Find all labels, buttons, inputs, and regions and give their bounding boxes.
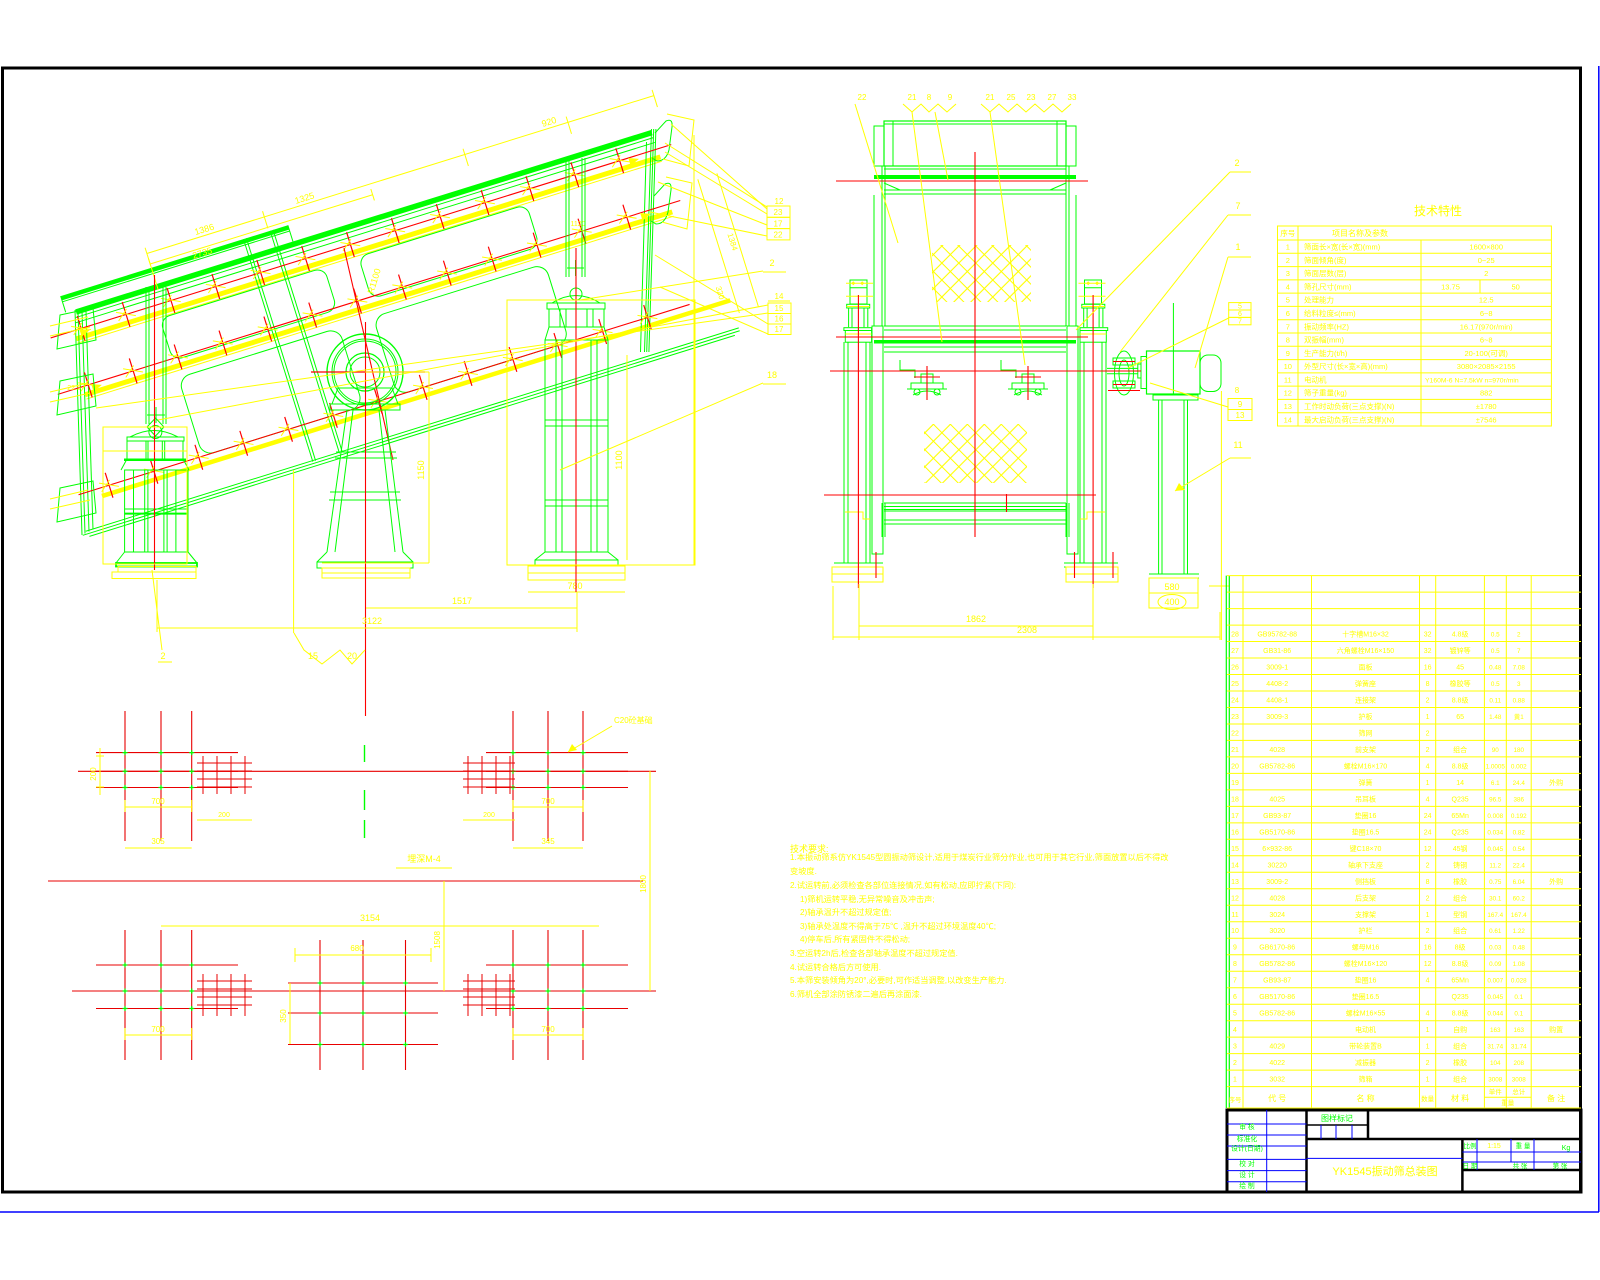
svg-text:6~8: 6~8 <box>1480 309 1493 318</box>
svg-text:2)轴承温升不超过规定值;: 2)轴承温升不超过规定值; <box>800 907 891 917</box>
svg-text:4.试运转合格后方可使用.: 4.试运转合格后方可使用. <box>790 962 881 972</box>
svg-text:R1100: R1100 <box>366 267 383 295</box>
svg-text:绘 制: 绘 制 <box>1239 1181 1255 1190</box>
svg-text:0.034: 0.034 <box>1487 829 1503 836</box>
svg-text:345: 345 <box>541 837 555 846</box>
svg-text:200: 200 <box>89 767 98 781</box>
svg-text:GB93-87: GB93-87 <box>1263 978 1291 985</box>
svg-text:2: 2 <box>1426 928 1430 935</box>
svg-text:1.48: 1.48 <box>1489 714 1502 721</box>
svg-text:1: 1 <box>1286 243 1290 252</box>
svg-text:项目名称及参数: 项目名称及参数 <box>1332 228 1388 238</box>
svg-text:350: 350 <box>279 1009 288 1023</box>
svg-text:2: 2 <box>1426 862 1430 869</box>
svg-text:1517: 1517 <box>452 596 472 606</box>
svg-text:GB93-87: GB93-87 <box>1263 813 1291 820</box>
svg-text:11.2: 11.2 <box>1489 862 1501 869</box>
svg-text:审 核: 审 核 <box>1239 1122 1255 1131</box>
svg-text:32: 32 <box>1424 648 1432 655</box>
svg-text:13: 13 <box>1231 879 1239 886</box>
svg-text:2: 2 <box>1286 256 1290 265</box>
svg-text:24: 24 <box>1424 813 1432 820</box>
svg-text:7: 7 <box>1233 978 1237 985</box>
svg-text:0.044: 0.044 <box>1487 1011 1503 1018</box>
svg-text:校 对: 校 对 <box>1239 1159 1255 1168</box>
svg-text:5.本筛安装倾角为20°,必要时,可作适当调整,以改变生产能: 5.本筛安装倾角为20°,必要时,可作适当调整,以改变生产能力. <box>790 975 1007 985</box>
svg-text:减振器: 减振器 <box>1355 1058 1376 1067</box>
svg-text:0.007: 0.007 <box>1487 978 1503 985</box>
svg-text:2: 2 <box>1426 1060 1430 1067</box>
svg-text:9: 9 <box>948 93 953 102</box>
svg-text:4: 4 <box>1286 282 1290 291</box>
svg-text:2: 2 <box>1233 1060 1237 1067</box>
svg-text:65Mn: 65Mn <box>1451 813 1469 820</box>
svg-text:0.48: 0.48 <box>1513 945 1526 952</box>
svg-text:7: 7 <box>1286 322 1290 331</box>
svg-text:名 称: 名 称 <box>1356 1093 1374 1103</box>
svg-text:Y160M-6 N=7.5kW n=970r/min: Y160M-6 N=7.5kW n=970r/min <box>1425 377 1519 384</box>
svg-text:18: 18 <box>1231 796 1239 803</box>
svg-text:0.045: 0.045 <box>1487 994 1503 1001</box>
svg-text:22.4: 22.4 <box>1513 862 1526 869</box>
svg-text:外型尺寸(长×宽×高)(mm): 外型尺寸(长×宽×高)(mm) <box>1304 361 1388 371</box>
svg-text:2: 2 <box>769 258 774 268</box>
svg-text:序号: 序号 <box>1229 1095 1243 1104</box>
svg-text:3)轴承处温度不得高于75℃ ,温升不超过环境温度40℃;: 3)轴承处温度不得高于75℃ ,温升不超过环境温度40℃; <box>800 921 996 931</box>
svg-text:0.48: 0.48 <box>1489 665 1502 672</box>
svg-text:埋深M-4: 埋深M-4 <box>407 854 441 864</box>
svg-text:11: 11 <box>1231 912 1238 919</box>
svg-text:1:15: 1:15 <box>1487 1143 1501 1150</box>
svg-text:33: 33 <box>1068 93 1077 102</box>
svg-text:65Mn: 65Mn <box>1451 978 1469 985</box>
svg-text:3009-2: 3009-2 <box>1266 879 1288 886</box>
svg-text:3122: 3122 <box>362 616 382 626</box>
svg-text:GB5170-86: GB5170-86 <box>1259 994 1295 1001</box>
svg-text:21: 21 <box>908 93 917 102</box>
svg-text:0.61: 0.61 <box>1489 928 1502 935</box>
svg-text:24: 24 <box>1231 698 1239 705</box>
svg-text:1: 1 <box>1426 1044 1430 1051</box>
svg-text:700: 700 <box>541 797 555 806</box>
svg-text:4408-1: 4408-1 <box>1266 698 1288 705</box>
svg-text:1: 1 <box>1426 714 1430 721</box>
svg-text:19: 19 <box>1231 780 1239 787</box>
svg-text:22.5: 22.5 <box>67 385 81 392</box>
svg-text:16.17(970r/min): 16.17(970r/min) <box>1460 322 1513 331</box>
svg-text:3080×2085×2155: 3080×2085×2155 <box>1457 362 1516 371</box>
svg-text:十字槽M16×32: 十字槽M16×32 <box>1342 630 1389 639</box>
svg-text:代 号: 代 号 <box>1268 1093 1286 1103</box>
svg-text:3020: 3020 <box>1269 928 1285 935</box>
svg-text:电动机: 电动机 <box>1355 1025 1376 1034</box>
svg-text:700: 700 <box>151 797 165 806</box>
svg-text:163: 163 <box>1490 1027 1501 1034</box>
svg-text:1325: 1325 <box>293 190 315 206</box>
svg-text:3009-3: 3009-3 <box>1266 714 1288 721</box>
svg-text:167.4: 167.4 <box>1511 912 1527 919</box>
svg-text:4028: 4028 <box>1269 747 1285 754</box>
svg-text:1.22: 1.22 <box>1513 928 1526 935</box>
svg-text:16: 16 <box>775 315 784 324</box>
svg-text:GB5782-86: GB5782-86 <box>1259 763 1295 770</box>
svg-text:25: 25 <box>1007 93 1016 102</box>
svg-text:双振幅(mm): 双振幅(mm) <box>1304 335 1344 345</box>
svg-text:2: 2 <box>1234 158 1239 168</box>
svg-text:4: 4 <box>1426 763 1430 770</box>
svg-text:螺母M16: 螺母M16 <box>1352 943 1380 952</box>
svg-text:2: 2 <box>160 651 165 661</box>
svg-text:工作时动负荷(三点支撑)(N): 工作时动负荷(三点支撑)(N) <box>1304 401 1395 411</box>
svg-text:12: 12 <box>1424 846 1432 853</box>
svg-text:5: 5 <box>1233 1011 1237 1018</box>
svg-text:11: 11 <box>1233 440 1242 450</box>
svg-text:Q235: Q235 <box>1452 994 1469 1001</box>
svg-text:GB5782-86: GB5782-86 <box>1259 961 1295 968</box>
svg-text:0.5: 0.5 <box>1491 681 1500 688</box>
svg-text:弹簧: 弹簧 <box>1359 778 1373 787</box>
svg-text:橡胶等: 橡胶等 <box>1450 679 1471 688</box>
svg-text:0.03: 0.03 <box>1489 945 1502 952</box>
svg-text:9: 9 <box>1233 945 1237 952</box>
svg-text:4: 4 <box>1426 978 1430 985</box>
svg-text:12: 12 <box>1231 895 1239 902</box>
svg-text:9: 9 <box>1238 400 1243 409</box>
svg-text:1150: 1150 <box>416 460 426 479</box>
svg-text:0.54: 0.54 <box>1513 846 1526 853</box>
svg-text:200: 200 <box>483 812 495 819</box>
svg-text:30220: 30220 <box>1267 862 1287 869</box>
svg-text:3024: 3024 <box>1269 912 1285 919</box>
svg-text:螺栓M16×170: 螺栓M16×170 <box>1344 761 1387 770</box>
svg-text:1: 1 <box>1235 242 1240 252</box>
svg-text:15: 15 <box>1231 846 1239 853</box>
svg-text:型钢: 型钢 <box>1453 910 1467 919</box>
svg-text:垫圈16.5: 垫圈16.5 <box>1352 827 1380 836</box>
svg-text:比例: 比例 <box>1464 1141 1477 1150</box>
svg-text:15: 15 <box>775 304 784 313</box>
svg-text:单件: 单件 <box>1489 1087 1503 1096</box>
svg-text:自购: 自购 <box>1453 1025 1467 1034</box>
svg-text:6: 6 <box>1286 309 1290 318</box>
svg-text:4022: 4022 <box>1269 1060 1285 1067</box>
svg-text:22: 22 <box>774 231 783 240</box>
svg-text:24.4: 24.4 <box>1513 780 1526 787</box>
svg-text:1508: 1508 <box>433 931 442 949</box>
svg-text:208: 208 <box>1514 1060 1525 1067</box>
svg-text:6~8: 6~8 <box>1480 336 1493 345</box>
svg-text:筛孔尺寸(mm): 筛孔尺寸(mm) <box>1304 281 1352 291</box>
svg-text:1.0005: 1.0005 <box>1486 763 1506 770</box>
svg-text:材 料: 材 料 <box>1451 1093 1469 1103</box>
svg-text:共 张: 共 张 <box>1513 1161 1528 1170</box>
svg-text:8.8级: 8.8级 <box>1452 761 1469 770</box>
svg-text:前支架: 前支架 <box>1355 745 1376 754</box>
svg-text:9: 9 <box>1286 349 1290 358</box>
svg-text:连接架: 连接架 <box>1355 696 1376 705</box>
svg-text:200: 200 <box>218 812 230 819</box>
svg-text:0.1: 0.1 <box>1514 1011 1523 1018</box>
svg-text:14: 14 <box>1456 780 1464 787</box>
svg-text:4025: 4025 <box>1269 796 1285 803</box>
svg-text:C20砼基础: C20砼基础 <box>614 715 653 725</box>
svg-text:180: 180 <box>1514 747 1525 754</box>
svg-text:侧挡板: 侧挡板 <box>1355 877 1376 886</box>
svg-text:45钢: 45钢 <box>1453 844 1468 853</box>
svg-text:2308: 2308 <box>1017 625 1037 635</box>
svg-text:带轮装置B: 带轮装置B <box>1349 1042 1382 1051</box>
svg-text:882: 882 <box>1480 389 1493 398</box>
svg-text:螺栓M16×120: 螺栓M16×120 <box>1344 959 1387 968</box>
svg-text:104: 104 <box>1490 1060 1501 1067</box>
svg-text:1: 1 <box>1426 912 1430 919</box>
svg-text:6: 6 <box>1233 994 1237 1001</box>
svg-text:12: 12 <box>1284 389 1292 398</box>
svg-text:12: 12 <box>1424 961 1432 968</box>
svg-text:后支架: 后支架 <box>1355 893 1376 902</box>
svg-text:±1780: ±1780 <box>1476 402 1497 411</box>
svg-text:305: 305 <box>151 837 165 846</box>
svg-text:0.028: 0.028 <box>1511 978 1527 985</box>
svg-text:1600×800: 1600×800 <box>1469 243 1503 252</box>
svg-text:筛子重量(kg): 筛子重量(kg) <box>1304 388 1347 398</box>
svg-text:7: 7 <box>1238 318 1242 325</box>
svg-text:组合: 组合 <box>1453 893 1467 902</box>
svg-text:8: 8 <box>1426 879 1430 886</box>
svg-text:12: 12 <box>775 197 784 206</box>
svg-text:1)筛机运转平稳,无异常噪音及冲击声;: 1)筛机运转平稳,无异常噪音及冲击声; <box>800 894 935 904</box>
svg-text:1: 1 <box>1233 1077 1237 1084</box>
svg-text:580: 580 <box>1164 582 1179 592</box>
svg-text:电动机: 电动机 <box>1304 374 1327 384</box>
svg-text:65: 65 <box>1456 714 1464 721</box>
svg-text:28: 28 <box>1231 632 1239 639</box>
svg-text:1100: 1100 <box>614 450 624 469</box>
svg-text:重 量: 重 量 <box>1516 1142 1531 1150</box>
svg-text:27: 27 <box>1048 93 1057 102</box>
svg-text:生产能力(t/h): 生产能力(t/h) <box>1304 348 1348 358</box>
svg-text:变坡度.: 变坡度. <box>790 866 817 876</box>
svg-text:4: 4 <box>1426 796 1430 803</box>
svg-text:21: 21 <box>986 93 995 102</box>
svg-text:0.75: 0.75 <box>1489 879 1502 886</box>
svg-text:GB31-86: GB31-86 <box>1263 648 1291 655</box>
svg-text:2: 2 <box>1517 632 1521 639</box>
svg-text:400: 400 <box>1164 597 1179 607</box>
svg-text:700: 700 <box>541 1025 555 1034</box>
svg-text:4: 4 <box>1233 1027 1237 1034</box>
svg-text:60.2: 60.2 <box>1513 895 1526 902</box>
svg-text:0.09: 0.09 <box>1489 961 1502 968</box>
svg-text:0.008: 0.008 <box>1487 813 1503 820</box>
svg-text:25: 25 <box>1231 681 1239 688</box>
svg-text:筛网: 筛网 <box>1359 728 1373 737</box>
svg-text:组合: 组合 <box>1453 745 1467 754</box>
svg-text:163: 163 <box>1514 1027 1525 1034</box>
svg-text:3008: 3008 <box>1512 1077 1527 1084</box>
svg-text:0.82: 0.82 <box>1513 829 1526 836</box>
svg-text:面板: 面板 <box>1359 663 1373 672</box>
svg-text:31.74: 31.74 <box>1511 1044 1527 1051</box>
svg-text:垫圈16: 垫圈16 <box>1355 976 1377 985</box>
svg-text:YK1545振动筛总装图: YK1545振动筛总装图 <box>1332 1164 1437 1178</box>
svg-text:23: 23 <box>774 208 783 217</box>
svg-text:1.08: 1.08 <box>1513 961 1526 968</box>
svg-text:0.5: 0.5 <box>1491 632 1500 639</box>
svg-text:23: 23 <box>1027 93 1036 102</box>
svg-text:GB5782-86: GB5782-86 <box>1259 1011 1295 1018</box>
svg-text:垫圈16: 垫圈16 <box>1355 811 1377 820</box>
svg-text:六角螺栓M16×150: 六角螺栓M16×150 <box>1337 646 1394 655</box>
svg-text:最大启动负荷(三点支撑)(N): 最大启动负荷(三点支撑)(N) <box>1304 414 1395 424</box>
svg-text:筛箱: 筛箱 <box>1359 1075 1373 1084</box>
svg-text:±7546: ±7546 <box>1476 415 1497 424</box>
svg-text:3: 3 <box>1517 681 1521 688</box>
svg-text:4028: 4028 <box>1269 895 1285 902</box>
svg-text:设 计: 设 计 <box>1239 1170 1255 1179</box>
svg-text:1: 1 <box>1426 1077 1430 1084</box>
svg-text:组合: 组合 <box>1453 1075 1467 1084</box>
svg-text:0.88: 0.88 <box>1513 698 1526 705</box>
svg-text:标准化: 标准化 <box>1237 1134 1258 1143</box>
svg-text:167.4: 167.4 <box>1487 912 1503 919</box>
svg-text:16: 16 <box>1424 945 1432 952</box>
svg-text:1862: 1862 <box>966 614 986 624</box>
svg-text:1800: 1800 <box>639 875 648 893</box>
svg-text:2: 2 <box>1426 698 1430 705</box>
svg-text:2: 2 <box>1426 747 1430 754</box>
svg-text:振动频率(HZ): 振动频率(HZ) <box>1304 321 1349 331</box>
svg-text:700: 700 <box>151 1025 165 1034</box>
svg-text:技术特性: 技术特性 <box>1414 203 1462 218</box>
svg-text:8: 8 <box>1233 961 1237 968</box>
svg-text:18: 18 <box>767 370 777 380</box>
svg-text:7: 7 <box>1235 201 1240 211</box>
svg-text:20-100(可调): 20-100(可调) <box>1465 349 1509 358</box>
svg-text:1120: 1120 <box>570 221 585 228</box>
svg-text:96.5: 96.5 <box>1489 796 1502 803</box>
svg-text:购置: 购置 <box>1549 1025 1563 1034</box>
svg-text:6.筛机全部涂防锈漆二遍后再涂面漆.: 6.筛机全部涂防锈漆二遍后再涂面漆. <box>790 989 922 999</box>
svg-text:7.08: 7.08 <box>1513 665 1526 672</box>
svg-text:外购: 外购 <box>1549 778 1563 787</box>
svg-text:17: 17 <box>774 219 783 228</box>
svg-text:4029: 4029 <box>1269 1044 1285 1051</box>
svg-text:组合: 组合 <box>1453 1042 1467 1051</box>
svg-text:10: 10 <box>1231 928 1239 935</box>
svg-text:20: 20 <box>1231 763 1239 770</box>
svg-text:垫圈16.5: 垫圈16.5 <box>1352 992 1380 1001</box>
svg-text:17: 17 <box>1231 813 1239 820</box>
svg-text:4)停车后,所有紧固件不得松动;: 4)停车后,所有紧固件不得松动; <box>800 934 910 944</box>
svg-text:吊耳板: 吊耳板 <box>1355 794 1376 803</box>
svg-text:重量: 重量 <box>1501 1099 1515 1107</box>
svg-text:图样标记: 图样标记 <box>1321 1113 1353 1123</box>
svg-text:0.1: 0.1 <box>1514 994 1523 1001</box>
svg-text:780: 780 <box>567 581 582 591</box>
svg-text:护板: 护板 <box>1359 712 1373 721</box>
svg-text:备 注: 备 注 <box>1547 1093 1565 1103</box>
svg-text:2: 2 <box>1484 269 1488 278</box>
svg-text:15: 15 <box>308 651 318 661</box>
svg-text:3008: 3008 <box>1488 1077 1503 1084</box>
svg-text:GB6170-86: GB6170-86 <box>1259 945 1295 952</box>
svg-text:外购: 外购 <box>1549 877 1563 886</box>
svg-text:31.74: 31.74 <box>1487 1044 1503 1051</box>
svg-text:14: 14 <box>1284 415 1292 424</box>
svg-text:14: 14 <box>775 292 784 301</box>
svg-text:给料粒度≤(mm): 给料粒度≤(mm) <box>1304 308 1356 318</box>
svg-text:支撑架: 支撑架 <box>1355 910 1376 919</box>
svg-text:21: 21 <box>1231 747 1239 754</box>
svg-text:2: 2 <box>1426 730 1430 737</box>
svg-text:8.8级: 8.8级 <box>1452 1009 1469 1018</box>
svg-text:10: 10 <box>1284 362 1292 371</box>
svg-text:680: 680 <box>350 944 364 953</box>
svg-text:6.04: 6.04 <box>1513 879 1526 886</box>
svg-text:11: 11 <box>1284 375 1292 384</box>
svg-text:17: 17 <box>775 325 784 334</box>
svg-text:3.空运转2h后,检查各部轴承温度不超过规定值.: 3.空运转2h后,检查各部轴承温度不超过规定值. <box>790 948 958 958</box>
svg-text:1.本振动筛系仿YK1545型圆振动筛设计,适用于煤炭行业筛: 1.本振动筛系仿YK1545型圆振动筛设计,适用于煤炭行业筛分作业,也可用于其它… <box>790 852 1168 862</box>
svg-text:26: 26 <box>1231 665 1239 672</box>
svg-text:6.1: 6.1 <box>1491 780 1500 787</box>
svg-text:0.5: 0.5 <box>1491 648 1500 655</box>
svg-text:23: 23 <box>1231 714 1239 721</box>
svg-text:16: 16 <box>1231 829 1239 836</box>
svg-text:第 张: 第 张 <box>1553 1161 1568 1170</box>
svg-text:总计: 总计 <box>1512 1087 1526 1096</box>
svg-text:7: 7 <box>1517 648 1521 655</box>
svg-text:筛面层数(层): 筛面层数(层) <box>1304 268 1347 278</box>
svg-text:处理能力: 处理能力 <box>1304 295 1334 305</box>
svg-text:镀锌等: 镀锌等 <box>1450 646 1471 655</box>
svg-text:1384: 1384 <box>725 232 739 252</box>
svg-text:320: 320 <box>714 285 727 301</box>
svg-text:5: 5 <box>1286 296 1290 305</box>
svg-text:序号: 序号 <box>1280 228 1295 238</box>
svg-text:组合: 组合 <box>1453 926 1467 935</box>
svg-text:14: 14 <box>1231 862 1239 869</box>
svg-text:8.8级: 8.8级 <box>1452 696 1469 705</box>
svg-text:90: 90 <box>1492 747 1500 754</box>
svg-text:30.1: 30.1 <box>1489 895 1502 902</box>
svg-text:12.5: 12.5 <box>1479 296 1494 305</box>
svg-text:4: 4 <box>1426 1011 1430 1018</box>
svg-text:13: 13 <box>1284 402 1292 411</box>
svg-text:50: 50 <box>1512 282 1520 291</box>
svg-text:Q235: Q235 <box>1452 829 1469 836</box>
svg-text:0.002: 0.002 <box>1511 763 1527 770</box>
svg-text:20: 20 <box>347 651 357 661</box>
svg-text:设计(日期): 设计(日期) <box>1231 1144 1263 1153</box>
svg-text:黄1: 黄1 <box>1514 712 1524 721</box>
svg-text:32: 32 <box>1424 632 1432 639</box>
svg-text:8: 8 <box>1426 681 1430 688</box>
svg-text:3032: 3032 <box>1269 1077 1285 1084</box>
svg-text:8: 8 <box>1235 386 1240 395</box>
svg-text:数量: 数量 <box>1421 1094 1435 1103</box>
svg-text:4.8级: 4.8级 <box>1452 630 1469 639</box>
svg-text:3154: 3154 <box>360 913 380 923</box>
svg-text:24: 24 <box>1424 829 1432 836</box>
svg-text:筛面倾角(度): 筛面倾角(度) <box>1304 255 1347 265</box>
svg-text:3: 3 <box>1286 269 1290 278</box>
svg-text:Kg: Kg <box>1562 1145 1571 1152</box>
svg-text:筛面长×宽(长×宽)(mm): 筛面长×宽(长×宽)(mm) <box>1304 242 1381 252</box>
svg-text:Q235: Q235 <box>1452 796 1469 803</box>
svg-text:0~25: 0~25 <box>1478 256 1495 265</box>
